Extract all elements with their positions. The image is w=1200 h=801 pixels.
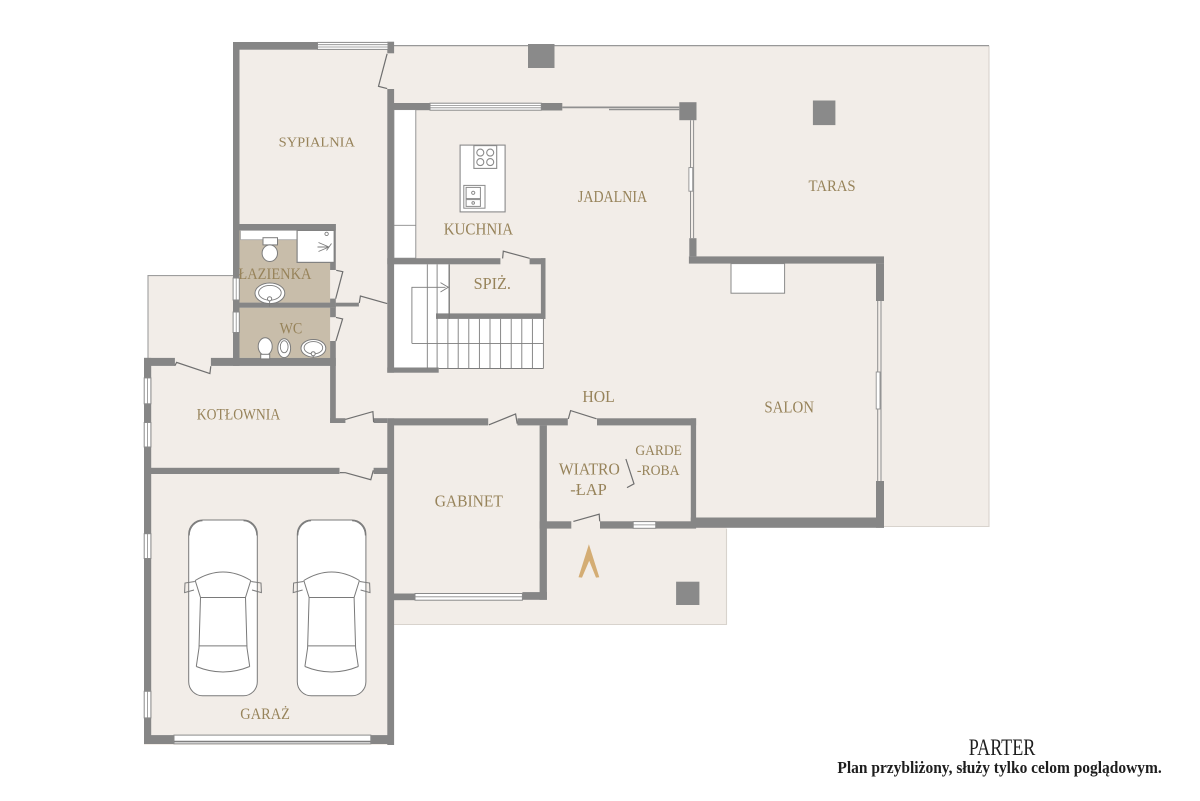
svg-text:TARAS: TARAS (809, 178, 856, 195)
svg-text:KOTŁOWNIA: KOTŁOWNIA (197, 406, 281, 423)
svg-text:SYPIALNIA: SYPIALNIA (279, 135, 356, 150)
svg-text:HOL: HOL (582, 387, 614, 406)
svg-text:GARDE: GARDE (635, 443, 682, 459)
svg-text:Plan przybliżony, służy tylko: Plan przybliżony, służy tylko celom pogl… (837, 758, 1161, 777)
svg-text:WC: WC (280, 321, 303, 338)
svg-text:SALON: SALON (764, 398, 814, 417)
svg-text:SPIŻ.: SPIŻ. (474, 274, 511, 293)
svg-text:WIATRO: WIATRO (559, 460, 620, 479)
svg-text:KUCHNIA: KUCHNIA (444, 219, 514, 238)
svg-text:GARAŻ: GARAŻ (240, 705, 290, 723)
svg-text:-ŁAP: -ŁAP (570, 480, 607, 499)
svg-text:PARTER: PARTER (969, 735, 1036, 761)
svg-text:JADALNIA: JADALNIA (578, 187, 647, 206)
svg-text:ŁAZIENKA: ŁAZIENKA (238, 266, 312, 283)
svg-text:-ROBA: -ROBA (637, 463, 680, 479)
svg-text:GABINET: GABINET (435, 491, 504, 510)
